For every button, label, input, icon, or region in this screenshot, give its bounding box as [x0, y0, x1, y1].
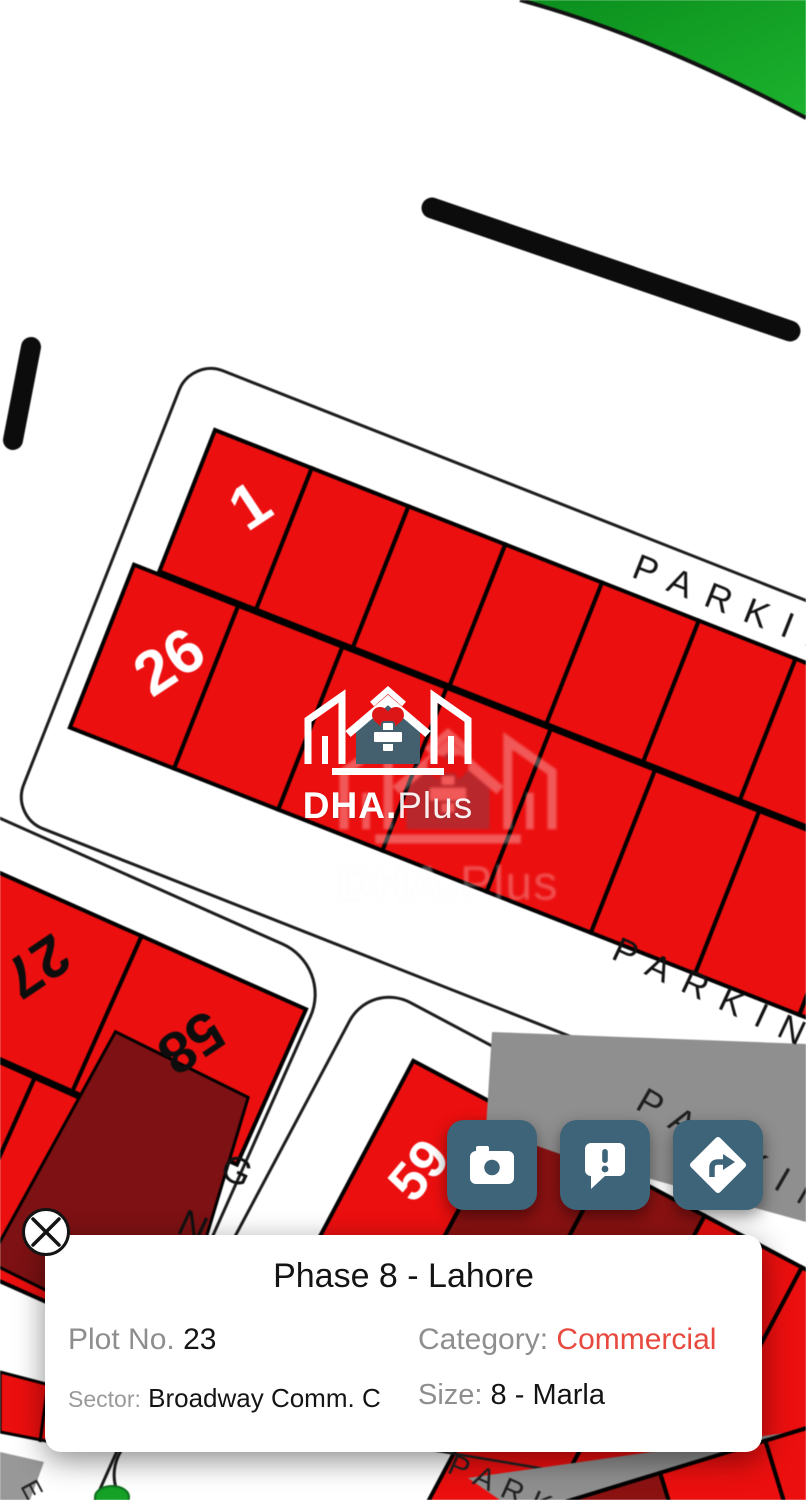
report-button[interactable] — [560, 1120, 650, 1210]
directions-button[interactable] — [673, 1120, 763, 1210]
size-label: Size: — [418, 1379, 482, 1411]
size-field: Size: 8 - Marla — [418, 1379, 605, 1412]
card-title: Phase 8 - Lahore — [45, 1257, 762, 1296]
category-value: Commercial — [556, 1323, 716, 1356]
camera-button[interactable] — [447, 1120, 537, 1210]
plot-number-value: 23 — [183, 1323, 216, 1356]
sector-value: Broadway Comm. C — [148, 1383, 381, 1413]
sector-label: Sector: — [68, 1386, 141, 1412]
category-field: Category: Commercial — [418, 1323, 716, 1357]
green-marker — [95, 1486, 129, 1500]
plot-info-card: Phase 8 - Lahore Plot No. 23 Category: C… — [45, 1235, 762, 1452]
sector-field: Sector: Broadway Comm. C — [68, 1383, 381, 1414]
app-screen: PARKING 1 26 27 58 — [0, 0, 806, 1500]
size-value: 8 - Marla — [491, 1379, 605, 1411]
plot-number-field: Plot No. 23 — [68, 1323, 216, 1357]
directions-icon — [686, 1133, 750, 1197]
plot-number-label: Plot No. — [68, 1323, 175, 1356]
action-button-row — [447, 1120, 763, 1210]
report-icon — [573, 1133, 637, 1197]
close-icon — [26, 1212, 66, 1252]
close-card-button[interactable] — [22, 1208, 70, 1256]
camera-icon — [460, 1133, 524, 1197]
category-label: Category: — [418, 1323, 548, 1356]
